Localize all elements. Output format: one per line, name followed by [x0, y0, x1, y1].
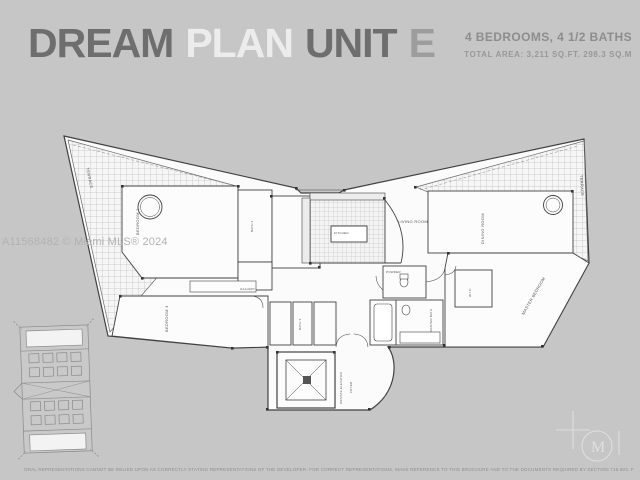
label-living-room: LIVING ROOM [398, 219, 428, 224]
vanity [400, 332, 440, 343]
toilet-tank [400, 274, 408, 279]
label-master-bath: MASTER BATH [429, 309, 433, 332]
label-bedroom2: BEDROOM 2 [135, 208, 140, 235]
bath-3 [270, 302, 291, 345]
living-dining-room [428, 191, 573, 253]
brand-logo: M [556, 411, 619, 461]
label-foyer: FOYER [349, 381, 353, 393]
bath-2 [238, 190, 272, 262]
label-kitchen: KITCHEN [334, 231, 349, 235]
floorplan-page: DREAMPLANUNITE 4 BEDROOMS, 4 1/2 BATHS T… [0, 0, 640, 480]
key-plan [12, 319, 99, 460]
bedroom-3 [112, 296, 268, 348]
bathtub [374, 304, 392, 341]
private-elevator [277, 352, 335, 408]
mls-watermark: A11568482 © Miami MLS® 2024 [2, 236, 168, 248]
disclaimer-text: ORAL REPRESENTATIONS CANNOT BE RELIED UP… [24, 467, 634, 472]
toilet [402, 305, 410, 315]
bath-3b [293, 302, 312, 345]
kitchen-counter-left [302, 198, 310, 263]
label-elevator: PRIVATE ELEVATOR [339, 371, 343, 404]
label-wic: W.I.C. [468, 288, 472, 297]
elevator-cab [303, 376, 311, 384]
logo-monogram-m: M [591, 439, 605, 456]
label-powder: POWDER [386, 270, 401, 274]
label-bath3: BATH 3 [298, 318, 302, 330]
keyplan-unit-bottom [30, 433, 87, 451]
bath-3c [314, 302, 336, 345]
kitchen-counter-top [310, 193, 385, 200]
keyplan-unit-top [26, 329, 83, 347]
walk-in-closet [455, 270, 492, 307]
label-bedroom3: BEDROOM 3 [164, 305, 169, 332]
label-gallery: GALLERY [240, 287, 255, 291]
label-bath2: BATH 2 [250, 220, 254, 232]
label-dining-room: DINING ROOM [480, 213, 485, 244]
